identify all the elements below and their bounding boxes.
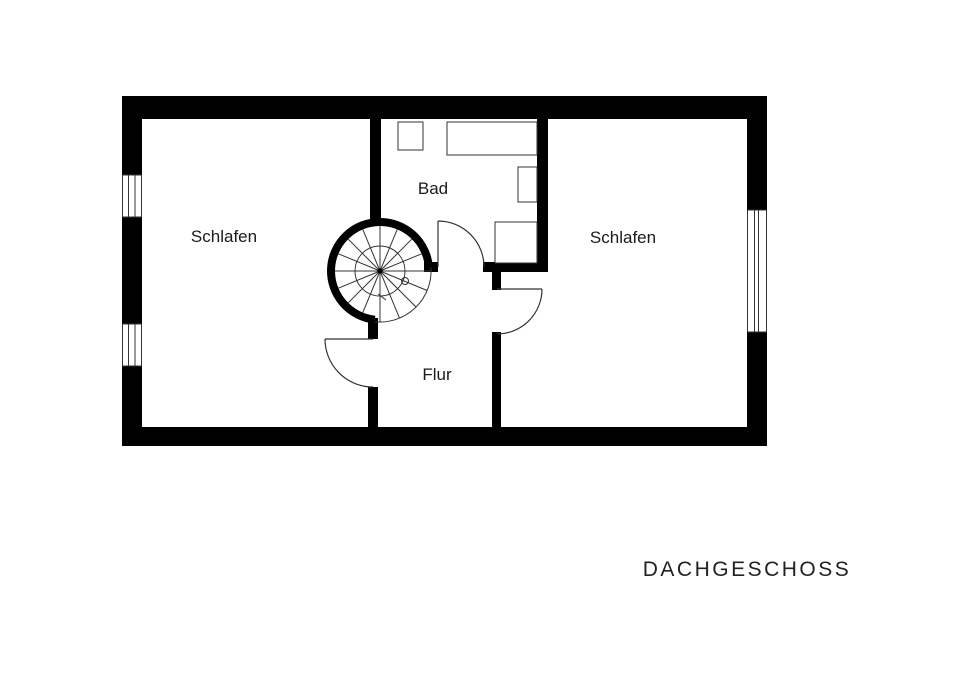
stair-open-edge [375, 267, 431, 322]
sink-icon [398, 122, 423, 150]
windows [123, 175, 767, 366]
interior-walls [368, 119, 548, 427]
wall-flur-right-lower [492, 332, 501, 427]
room-label-bad: Bad [418, 179, 448, 199]
door-bad-icon [438, 221, 484, 267]
stair-break-tick [378, 294, 386, 300]
wall-flur-right-stub [492, 272, 501, 290]
window-left-upper-icon [123, 175, 142, 217]
wall-right-upper [747, 96, 767, 210]
wall-right-lower [747, 332, 767, 446]
window-left-lower-icon [123, 324, 142, 366]
stair-center-post [378, 269, 383, 274]
wall-bad-right [537, 119, 548, 272]
toilet-icon [518, 167, 537, 202]
wall-left-upper [122, 96, 142, 175]
floor-title: DACHGESCHOSS [643, 558, 852, 582]
spiral-staircase-icon [331, 222, 431, 322]
shower-icon [495, 222, 537, 263]
wall-flur-left-lower [368, 387, 378, 427]
outer-walls [122, 96, 767, 446]
floorplan-page: Schlafen Bad Schlafen Flur DACHGESCHOSS [0, 0, 960, 679]
door-schlafen-right-icon [497, 289, 542, 334]
window-right-icon [748, 210, 767, 332]
wall-bad-left [370, 119, 381, 223]
wall-top [122, 96, 767, 119]
wall-bottom [122, 427, 767, 446]
wall-left-middle [122, 217, 142, 324]
room-label-flur: Flur [422, 365, 451, 385]
door-schlafen-left-icon [325, 339, 373, 387]
bathtub-icon [447, 122, 537, 155]
room-label-schlafen-left: Schlafen [191, 227, 257, 247]
room-label-schlafen-right: Schlafen [590, 228, 656, 248]
wall-left-lower [122, 366, 142, 446]
